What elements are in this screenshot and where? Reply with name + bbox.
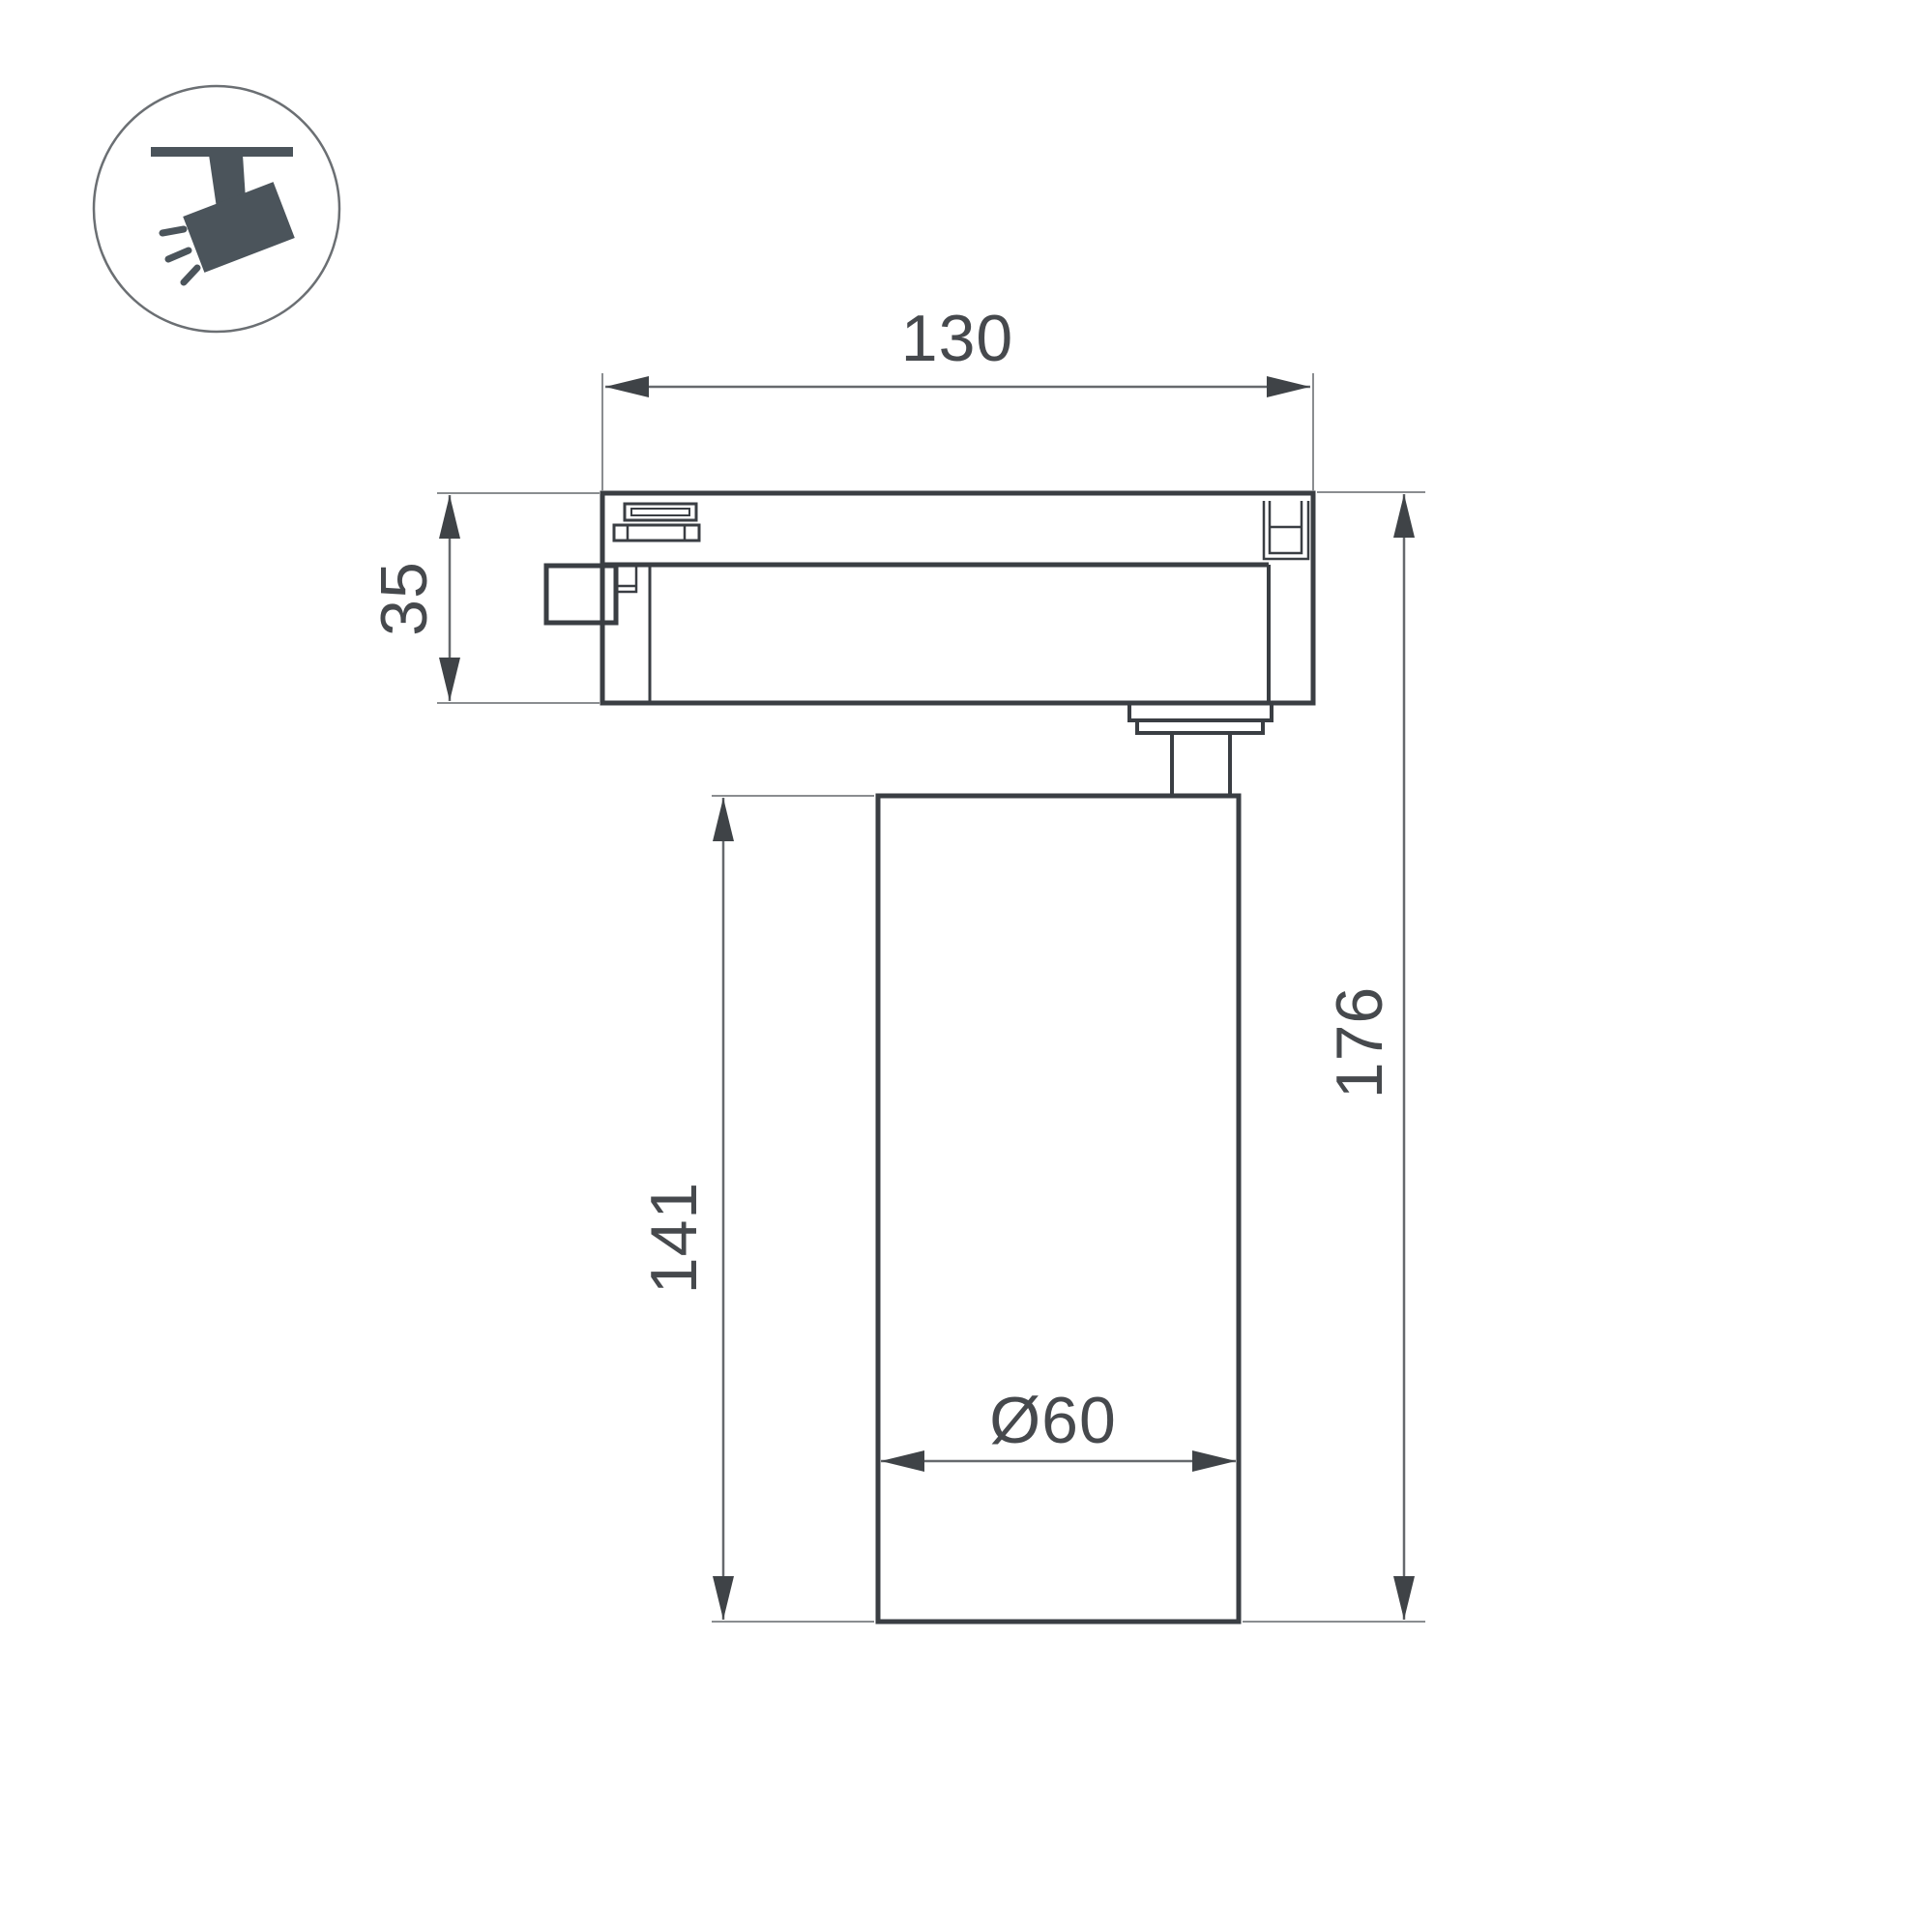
adapter-outline: [602, 493, 1313, 703]
drawing-canvas: 130 35 141 176 Ø60: [0, 0, 1932, 1932]
arrow-176-down: [1393, 1576, 1415, 1620]
arrow-d60-left: [881, 1450, 924, 1472]
hinge-stem: [1172, 733, 1230, 796]
arrow-176-up: [1393, 494, 1415, 538]
arrow-130-left: [605, 376, 649, 397]
lamp-body-outline: [878, 796, 1239, 1622]
adapter-details: [614, 501, 1308, 592]
extension-lines: [437, 373, 1425, 1622]
channel-notch: [616, 567, 636, 592]
contact-slider-outer: [625, 504, 696, 520]
dim-label-body-height: 141: [641, 1182, 707, 1294]
arrow-141-up: [713, 798, 734, 841]
dimension-lines: [450, 387, 1404, 1620]
dim-label-overall-height: 176: [1327, 986, 1392, 1098]
dimension-drawing-svg: [0, 0, 1932, 1932]
arrow-d60-right: [1192, 1450, 1236, 1472]
arrow-35-up: [439, 495, 460, 539]
hinge-flange-upper: [1129, 703, 1272, 720]
dim-label-body-diameter: Ø60: [989, 1388, 1117, 1453]
arrow-141-down: [713, 1576, 734, 1620]
arrow-130-right: [1267, 376, 1310, 397]
adapter-lock-lever: [546, 566, 616, 623]
contact-slider-inner: [631, 509, 689, 515]
dim-label-track-width: 130: [901, 306, 1013, 371]
arrow-35-down: [439, 658, 460, 701]
dim-label-adapter-height: 35: [371, 561, 437, 636]
track-spotlight-icon: [94, 86, 339, 332]
